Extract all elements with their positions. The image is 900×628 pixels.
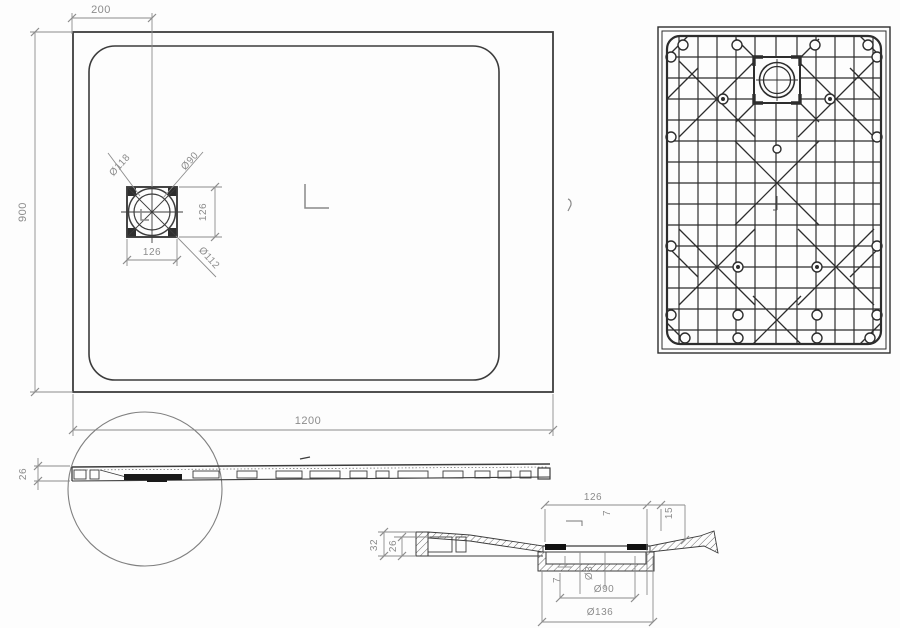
dim-section-lip: 7 (602, 510, 613, 516)
dim-plan-width: 1200 (295, 415, 321, 427)
dim-drain-square-h: 126 (198, 203, 209, 221)
dim-section-flange-dia: Ø136 (587, 607, 613, 618)
dim-section-rim-height: 15 (664, 507, 675, 519)
plan-dimensions (30, 13, 557, 436)
dim-section-recess-width: 126 (584, 492, 602, 503)
dim-section-wall: 7 (552, 577, 563, 583)
bottom-ribs-view (658, 27, 890, 353)
drain-plan-symbol (121, 181, 183, 243)
dim-section-total-height: 32 (369, 539, 380, 551)
section-left-cap (416, 532, 428, 556)
dim-drain-outer-dia: Ø118 (107, 152, 132, 178)
dim-section-inner-height: 26 (388, 540, 399, 552)
dim-drain-square-w: 126 (143, 247, 161, 258)
plan-view: 200 900 1200 126 126 Ø118 Ø90 Ø112 (17, 4, 571, 436)
section-detail-view: 126 7 15 32 26 7 Ø3 Ø90 Ø136 (369, 492, 718, 626)
dim-section-hole-dia: Ø3 (584, 566, 595, 580)
seal-left (545, 544, 566, 550)
drawing-canvas: 200 900 1200 126 126 Ø118 Ø90 Ø112 (0, 0, 900, 628)
dim-side-thickness: 26 (18, 468, 29, 480)
section-top-slab (428, 532, 543, 552)
dim-drain-inner-dia: Ø90 (179, 150, 201, 173)
detail-circle (68, 412, 222, 566)
dim-section-drain-dia: Ø90 (594, 584, 614, 595)
dim-drain-corner-dia: Ø112 (196, 245, 221, 271)
dim-plan-height: 900 (17, 202, 29, 222)
drawing-sheet: 200 900 1200 126 126 Ø118 Ø90 Ø112 (0, 0, 900, 628)
side-dimension (34, 458, 70, 490)
drain-bottom-housing (754, 57, 800, 103)
section-right-slab (650, 531, 718, 553)
dim-drain-offset: 200 (91, 4, 111, 16)
side-profile-view: 26 (18, 412, 550, 566)
seal-right (627, 544, 648, 550)
profile-top-edge (72, 464, 550, 467)
drain-flange-section (538, 552, 654, 571)
